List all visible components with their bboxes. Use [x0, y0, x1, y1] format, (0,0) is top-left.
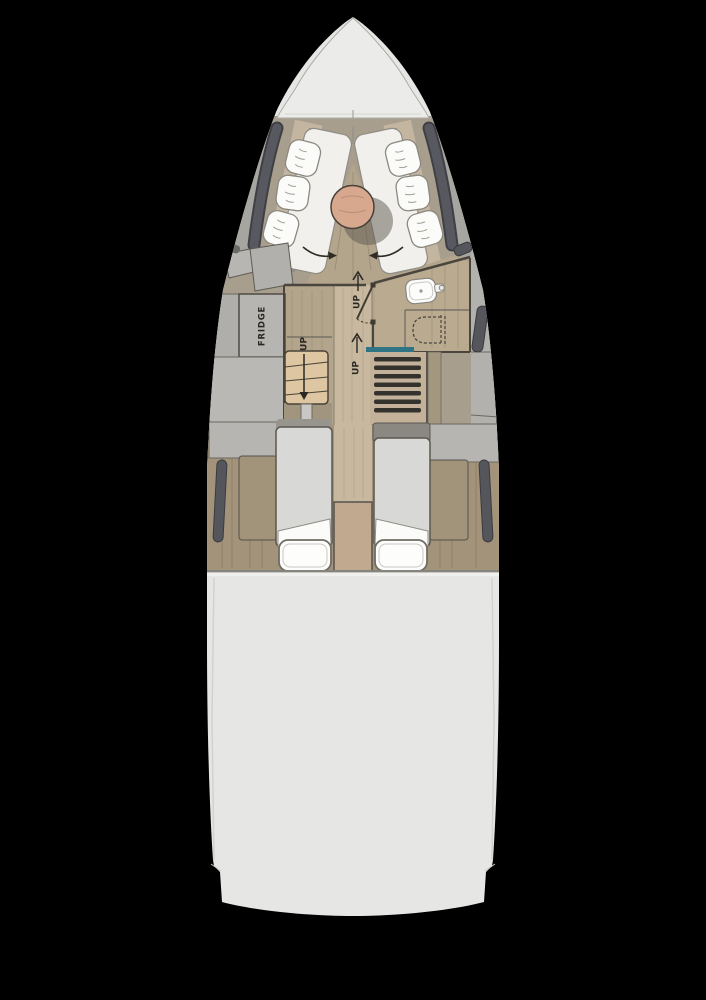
cabinet-port [209, 294, 239, 357]
svg-text:UP: UP [353, 295, 363, 309]
side-shelf-port [239, 456, 277, 540]
svg-text:UP: UP [352, 361, 362, 375]
stair-glass-accent [366, 347, 414, 352]
pillow-icon [275, 174, 311, 212]
yacht-floor-plan: FRIDGE UP UP [0, 0, 706, 1000]
cabinet-aft-port [209, 422, 277, 458]
aft-cabin [207, 419, 499, 572]
cabinet-port-aft [209, 357, 285, 423]
svg-text:UP: UP [300, 337, 310, 351]
bulkhead-line [206, 570, 500, 572]
dining-table [331, 186, 374, 229]
pillow-icon [395, 174, 431, 212]
staircase [370, 352, 441, 424]
bed-starboard [373, 423, 430, 571]
center-locker [334, 502, 372, 571]
companionway-steps [284, 351, 332, 425]
bow-deck [277, 18, 429, 118]
aft-corridor-floor [334, 425, 372, 502]
fridge-label: FRIDGE [258, 306, 268, 346]
floor-plan-canvas: FRIDGE UP UP [0, 0, 706, 1000]
cabinet-aft-starboard [429, 424, 499, 462]
side-shelf-starboard [429, 460, 468, 540]
bed-port [276, 419, 332, 571]
